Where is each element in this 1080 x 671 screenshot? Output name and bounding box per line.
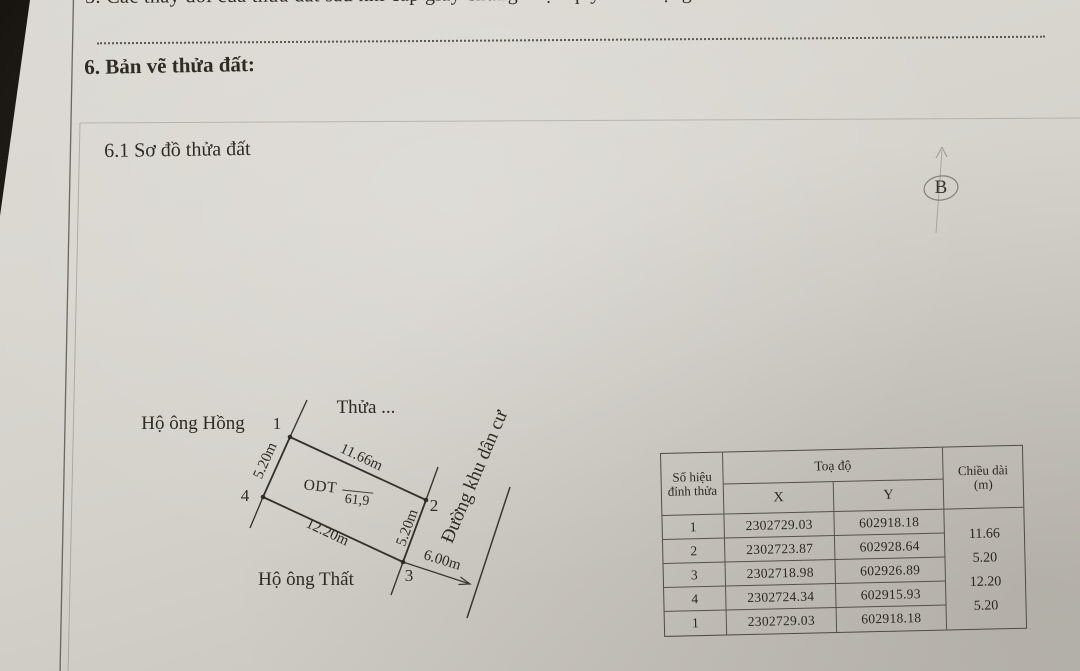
subsection61-heading: 6.1 Sơ đồ thửa đất — [104, 138, 251, 163]
parcel-name-label: Thửa ... — [337, 397, 396, 419]
table-cell-y: 602928.64 — [835, 534, 946, 560]
coordinate-table: Số hiệu đỉnh thửa Toạ độ X Y Chiều dài (… — [660, 445, 1027, 637]
column-header-length-line1: Chiều dài — [958, 463, 1008, 478]
section6-heading: 6. Bản vẽ thửa đất: — [84, 52, 255, 80]
vertex2-point — [424, 498, 429, 503]
scanned-land-document-page: 5. Các thay đổi của thửa đất sau khi cấp… — [0, 0, 1080, 671]
table-cell-vertex: 3 — [664, 563, 727, 588]
vertex1-label: 1 — [273, 414, 282, 434]
land-use-code: ODT — [303, 476, 338, 497]
table-column-lengths: 11.66 5.20 12.20 5.20 — [944, 508, 1026, 630]
vertex1-point — [288, 435, 293, 440]
vertex1-extension-line — [290, 400, 307, 437]
column-header-vertex-line2: đỉnh thửa — [668, 483, 718, 498]
length-value: 5.20 — [972, 546, 997, 571]
sketch-frame-top-line — [80, 118, 1080, 123]
column-header-vertex: Số hiệu đỉnh thửa — [661, 453, 724, 516]
table-cell-y: 602918.18 — [837, 606, 948, 632]
vertex4-label: 4 — [241, 486, 250, 506]
table-cell-y: 602915.93 — [836, 582, 947, 608]
table-cell-x: 2302723.87 — [725, 536, 836, 562]
table-cell-x: 2302724.34 — [726, 584, 837, 610]
neighbor-bottom-label: Hộ ông Thất — [258, 569, 354, 591]
length-value: 5.20 — [974, 594, 999, 619]
vertex4-extension-line — [250, 497, 263, 528]
column-header-length: Chiều dài (m) — [943, 446, 1023, 510]
column-header-coordinates: Toạ độ — [723, 448, 944, 485]
table-cell-x: 2302729.03 — [724, 512, 835, 538]
length-value: 11.66 — [969, 522, 1001, 547]
column-header-y: Y — [834, 480, 945, 512]
neighbor-top-label: Hộ ông Hồng — [141, 413, 244, 435]
vertex3-point — [401, 560, 406, 565]
table-cell-vertex: 1 — [662, 515, 725, 540]
length-value: 12.20 — [970, 570, 1002, 595]
vertex3-extension-line — [391, 562, 403, 595]
table-cell-vertex: 1 — [665, 611, 728, 636]
table-cell-x: 2302729.03 — [727, 608, 838, 634]
table-cell-vertex: 2 — [663, 539, 726, 564]
parcel-area-value: 61,9 — [341, 489, 373, 510]
table-cell-y: 602918.18 — [834, 510, 945, 536]
page-border-line — [60, 0, 74, 671]
vertex2-label: 2 — [430, 496, 439, 516]
table-cell-vertex: 4 — [664, 587, 727, 612]
vertex3-label: 3 — [405, 566, 414, 586]
table-cell-y: 602926.89 — [835, 558, 946, 584]
column-header-length-line2: (m) — [974, 477, 993, 491]
table-cell-x: 2302718.98 — [726, 560, 837, 586]
column-header-coordinates-text: Toạ độ — [814, 458, 851, 473]
annotation-letter-b: B — [935, 177, 948, 199]
column-header-x: X — [724, 482, 835, 514]
vertex4-point — [261, 495, 266, 500]
